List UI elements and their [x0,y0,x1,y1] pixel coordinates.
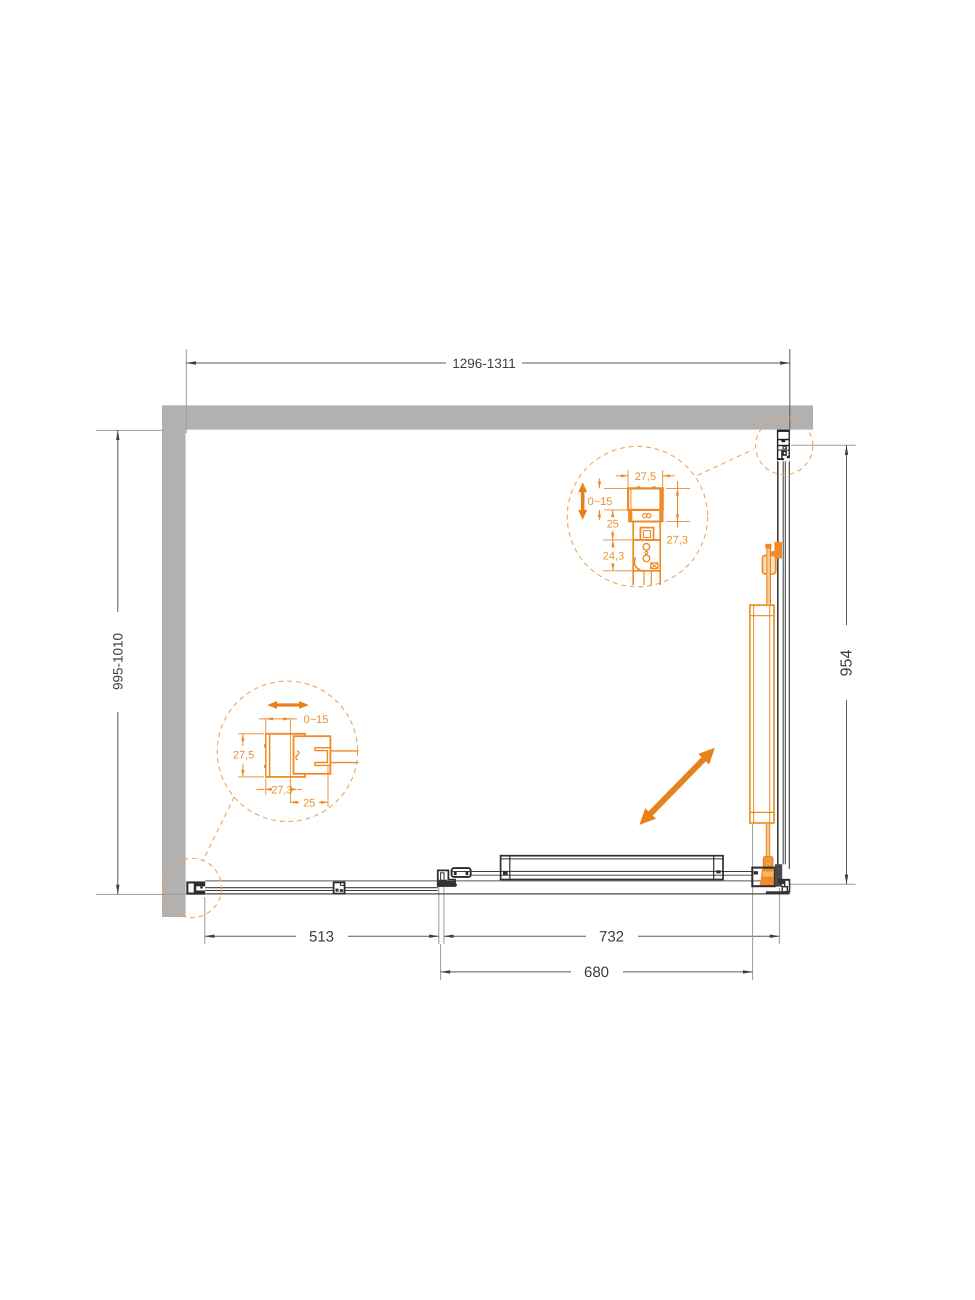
svg-text:732: 732 [599,928,624,945]
svg-text:24,3: 24,3 [603,550,624,562]
svg-text:0~15: 0~15 [304,714,329,726]
svg-text:27,3: 27,3 [271,784,292,796]
svg-text:27,5: 27,5 [233,750,254,762]
svg-text:27,5: 27,5 [635,471,656,483]
svg-text:995-1010: 995-1010 [110,633,125,690]
svg-text:27,3: 27,3 [667,535,688,547]
svg-text:954: 954 [839,650,856,677]
svg-text:0~15: 0~15 [588,496,613,508]
svg-text:25: 25 [607,519,619,531]
svg-text:25: 25 [303,797,315,809]
svg-text:513: 513 [309,928,334,945]
svg-text:680: 680 [584,964,609,981]
svg-text:1296-1311: 1296-1311 [452,356,516,371]
